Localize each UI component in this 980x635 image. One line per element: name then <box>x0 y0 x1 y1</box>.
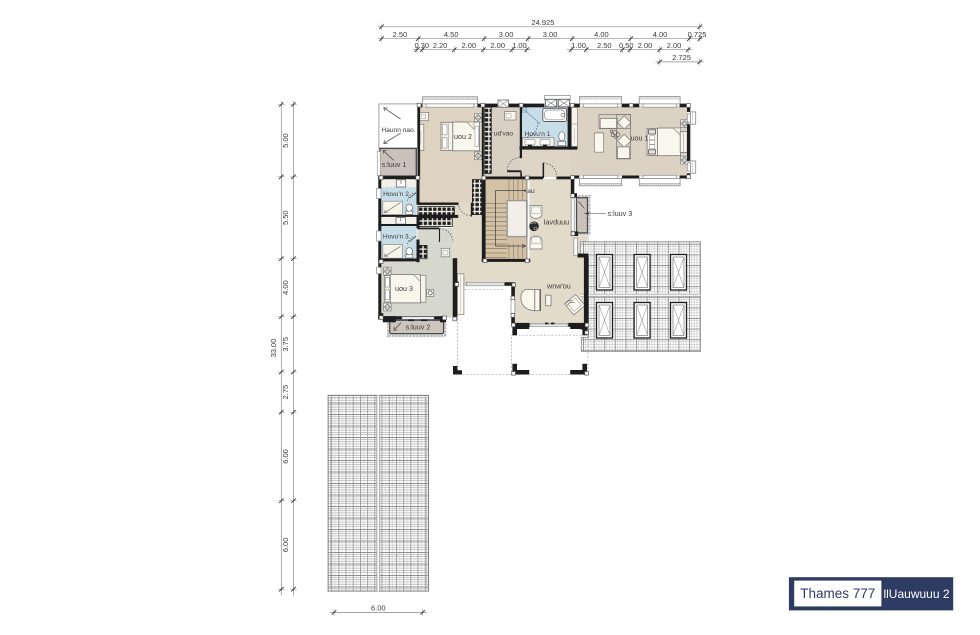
svg-text:2.725: 2.725 <box>672 53 691 62</box>
svg-text:0.30: 0.30 <box>414 41 429 50</box>
svg-text:Hovu'n 3: Hovu'n 3 <box>383 234 409 241</box>
svg-text:3.00: 3.00 <box>543 30 558 39</box>
svg-text:au: au <box>527 188 535 195</box>
svg-text:4.00: 4.00 <box>653 30 668 39</box>
svg-text:Hovu'n 1: Hovu'n 1 <box>525 131 551 138</box>
svg-text:6.00: 6.00 <box>281 449 290 464</box>
svg-text:uou 2: uou 2 <box>454 132 472 141</box>
svg-text:wnw'ou: wnw'ou <box>546 281 571 290</box>
svg-text:4.50: 4.50 <box>444 30 459 39</box>
svg-text:2.00: 2.00 <box>638 41 653 50</box>
svg-text:24.925: 24.925 <box>531 18 554 27</box>
svg-text:3.00: 3.00 <box>499 30 514 39</box>
svg-text:3.75: 3.75 <box>281 337 290 352</box>
svg-text:2.75: 2.75 <box>281 385 290 400</box>
svg-text:uou 3: uou 3 <box>395 284 413 293</box>
svg-text:2.50: 2.50 <box>393 30 408 39</box>
svg-text:Iavduuu: Iavduuu <box>544 217 570 226</box>
svg-text:5.00: 5.00 <box>281 133 290 148</box>
svg-text:2.00: 2.00 <box>667 41 682 50</box>
svg-text:s:luuv 3: s:luuv 3 <box>608 209 633 218</box>
svg-text:0.725: 0.725 <box>688 30 707 39</box>
svg-text:Haunn nao.: Haunn nao. <box>381 127 415 134</box>
svg-text:6.00: 6.00 <box>371 604 386 613</box>
svg-text:0.50: 0.50 <box>619 41 634 50</box>
svg-text:4.00: 4.00 <box>594 30 609 39</box>
svg-text:2.00: 2.00 <box>490 41 505 50</box>
svg-text:6.00: 6.00 <box>281 538 290 553</box>
svg-text:1.00: 1.00 <box>571 41 586 50</box>
svg-text:2.50: 2.50 <box>597 41 612 50</box>
svg-text:2.00: 2.00 <box>461 41 476 50</box>
svg-text:ud'vao: ud'vao <box>494 130 514 137</box>
svg-text:Hovu'n 2: Hovu'n 2 <box>383 191 409 198</box>
svg-text:uou 1: uou 1 <box>631 134 649 143</box>
svg-text:2.20: 2.20 <box>433 41 448 50</box>
svg-text:s:luuv 1: s:luuv 1 <box>382 160 407 169</box>
svg-text:4.00: 4.00 <box>281 280 290 295</box>
svg-text:Thames 777: Thames 777 <box>800 586 875 601</box>
svg-text:33.00: 33.00 <box>269 339 278 358</box>
svg-text:1.00: 1.00 <box>512 41 527 50</box>
svg-text:s:luuv 2: s:luuv 2 <box>406 322 431 331</box>
svg-text:llUauwuuu 2: llUauwuuu 2 <box>883 587 949 601</box>
svg-text:5.50: 5.50 <box>281 210 290 225</box>
